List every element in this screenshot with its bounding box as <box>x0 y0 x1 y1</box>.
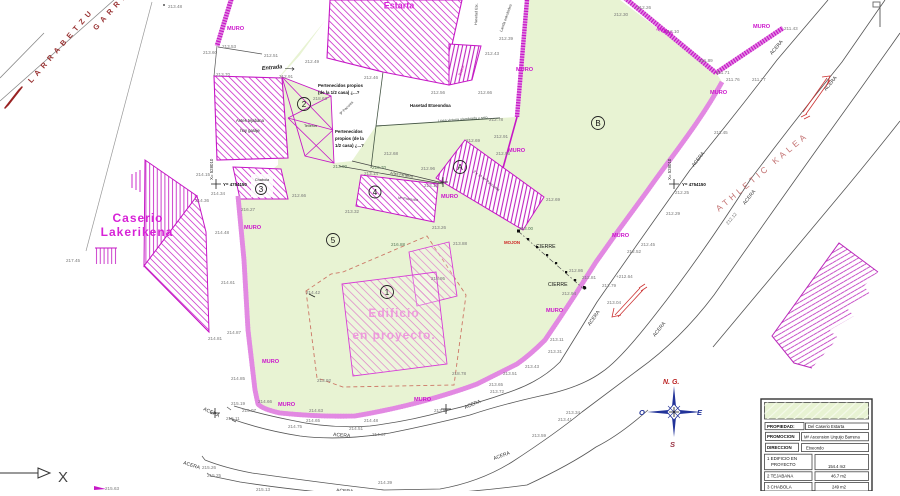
svg-text:213.11: 213.11 <box>550 337 564 342</box>
svg-text:Mª Ascension Urquijo Barrena: Mª Ascension Urquijo Barrena <box>804 435 860 440</box>
svg-text:212.78: 212.78 <box>489 117 503 122</box>
svg-text:212.30: 212.30 <box>614 12 628 17</box>
svg-text:1: 1 <box>385 288 390 297</box>
svg-text:154.4 m2: 154.4 m2 <box>828 464 846 469</box>
svg-text:213.00: 213.00 <box>519 226 533 231</box>
svg-text:213.60: 213.60 <box>203 50 217 55</box>
svg-text:212.96: 212.96 <box>421 166 435 171</box>
svg-text:Y= 4754150: Y= 4754150 <box>682 182 706 187</box>
svg-text:Hasetad Etx.: Hasetad Etx. <box>474 3 479 25</box>
svg-text:3: 3 <box>259 185 264 194</box>
svg-text:214.51: 214.51 <box>349 426 363 431</box>
svg-text:211.43: 211.43 <box>784 26 798 31</box>
svg-text:MURO: MURO <box>278 402 296 408</box>
svg-text:propios (de la: propios (de la <box>335 136 364 141</box>
svg-text:214.61: 214.61 <box>221 280 235 285</box>
svg-text:Chabola: Chabola <box>255 178 270 182</box>
svg-text:212.68: 212.68 <box>384 151 398 156</box>
svg-text:S: S <box>670 440 675 449</box>
svg-text:215.63: 215.63 <box>105 486 119 491</box>
svg-text:MURO: MURO <box>546 308 564 314</box>
svg-text:en proyecto.: en proyecto. <box>352 328 435 342</box>
svg-text:MURO: MURO <box>516 67 534 73</box>
svg-text:211.71: 211.71 <box>716 70 730 75</box>
svg-text:5: 5 <box>331 236 336 245</box>
svg-text:213.92: 213.92 <box>317 378 331 383</box>
svg-text:213.43: 213.43 <box>525 364 539 369</box>
svg-text:MURO: MURO <box>227 26 245 32</box>
svg-text:212.43: 212.43 <box>485 51 499 56</box>
svg-text:213.88: 213.88 <box>453 241 467 246</box>
svg-text:N. G.: N. G. <box>663 379 679 386</box>
svg-text:215.25: 215.25 <box>207 473 221 478</box>
svg-text:212.45: 212.45 <box>641 242 655 247</box>
svg-text:214.65: 214.65 <box>306 418 320 423</box>
svg-text:213.48: 213.48 <box>168 4 182 9</box>
svg-text:Lakerikena: Lakerikena <box>101 225 174 239</box>
svg-text:218.63: 218.63 <box>313 96 327 101</box>
svg-text:Telleros: Telleros <box>304 124 317 128</box>
svg-text:213.70: 213.70 <box>216 72 230 77</box>
svg-text:MURO: MURO <box>244 225 262 231</box>
svg-text:214.63: 214.63 <box>309 408 323 413</box>
svg-text:Y= 4754150: Y= 4754150 <box>223 182 247 187</box>
svg-text:MURO: MURO <box>612 233 630 239</box>
svg-text:212.39: 212.39 <box>499 36 513 41</box>
svg-text:218.95: 218.95 <box>431 276 445 281</box>
svg-text:A: A <box>457 163 463 172</box>
svg-text:214.81: 214.81 <box>208 336 222 341</box>
svg-text:212.51: 212.51 <box>264 53 278 58</box>
svg-text:(de la 1/2 casa) ¿...?: (de la 1/2 casa) ¿...? <box>318 90 360 95</box>
svg-text:212.66: 212.66 <box>292 193 306 198</box>
svg-text:1 EDIFICIO EN: 1 EDIFICIO EN <box>767 456 797 461</box>
svg-text:212.86: 212.86 <box>569 268 583 273</box>
svg-text:211.45: 211.45 <box>714 130 728 135</box>
svg-text:213.32: 213.32 <box>345 209 359 214</box>
svg-text:213.53: 213.53 <box>222 44 236 49</box>
svg-text:212.94: 212.94 <box>562 291 576 296</box>
svg-text:ACERA: ACERA <box>333 432 351 439</box>
svg-text:213.41: 213.41 <box>558 417 572 422</box>
svg-text:216.27: 216.27 <box>241 207 255 212</box>
svg-text:215.19: 215.19 <box>231 401 245 406</box>
svg-text:212.52: 212.52 <box>627 249 641 254</box>
svg-text:216.70: 216.70 <box>372 165 386 170</box>
svg-text:DIRECCION: DIRECCION <box>767 445 792 450</box>
svg-text:214.39: 214.39 <box>378 480 392 485</box>
svg-text:MURO: MURO <box>262 359 280 365</box>
svg-text:218.78: 218.78 <box>452 371 466 376</box>
svg-text:Estarta: Estarta <box>384 1 416 11</box>
svg-text:CIERRE: CIERRE <box>536 244 556 250</box>
svg-text:Etxeondo: Etxeondo <box>806 445 824 450</box>
svg-text:PROPIEDAD:: PROPIEDAD: <box>767 424 795 429</box>
svg-text:214.75: 214.75 <box>288 424 302 429</box>
svg-text:3 CHABOLA: 3 CHABOLA <box>767 484 792 489</box>
svg-text:214.85: 214.85 <box>231 376 245 381</box>
svg-text:212.26: 212.26 <box>637 5 651 10</box>
svg-text:211.89: 211.89 <box>699 58 713 63</box>
svg-text:212.66: 212.66 <box>478 90 492 95</box>
svg-text:X: X <box>58 469 68 486</box>
svg-text:X= 528010: X= 528010 <box>209 158 214 180</box>
svg-text:214.42: 214.42 <box>306 290 320 295</box>
svg-text:212.29: 212.29 <box>666 211 680 216</box>
svg-text:B: B <box>595 119 600 128</box>
svg-text:213.14: 213.14 <box>364 171 378 176</box>
svg-text:MOJON: MOJON <box>504 240 520 245</box>
svg-text:214.34: 214.34 <box>211 191 225 196</box>
svg-text:213.72: 213.72 <box>490 389 504 394</box>
svg-text:MURO: MURO <box>508 148 526 154</box>
svg-text:MURO: MURO <box>710 90 728 96</box>
svg-text:213.51: 213.51 <box>503 371 517 376</box>
svg-text:214.66: 214.66 <box>258 399 272 404</box>
svg-text:213.34: 213.34 <box>566 410 580 415</box>
svg-text:213.00: 213.00 <box>333 164 347 169</box>
svg-text:Hasetad Etxeondoa: Hasetad Etxeondoa <box>410 103 451 108</box>
svg-text:2 TEJABANA: 2 TEJABANA <box>767 474 793 479</box>
svg-text:Pertenecidos: Pertenecidos <box>335 129 363 134</box>
svg-text:212.91: 212.91 <box>279 74 293 79</box>
svg-text:217.45: 217.45 <box>66 258 80 263</box>
svg-text:249 m2: 249 m2 <box>832 484 847 489</box>
svg-text:MURO: MURO <box>441 194 459 200</box>
svg-text:Caserio: Caserio <box>112 211 163 225</box>
svg-text:212.46: 212.46 <box>364 75 378 80</box>
svg-text:PROYECTO: PROYECTO <box>771 462 796 467</box>
svg-text:+212.64: +212.64 <box>616 274 633 279</box>
svg-text:4: 4 <box>373 188 378 197</box>
svg-text:PROMOCION: PROMOCION <box>767 434 795 439</box>
svg-text:211.76: 211.76 <box>726 77 740 82</box>
svg-text:216.88: 216.88 <box>391 242 405 247</box>
svg-text:2: 2 <box>302 100 307 109</box>
svg-text:Del Caserio Estarta: Del Caserio Estarta <box>808 424 845 429</box>
svg-text:Edificio: Edificio <box>368 306 419 320</box>
svg-text:MURO: MURO <box>753 24 771 30</box>
svg-text:Pertenecidos propios: Pertenecidos propios <box>318 83 363 88</box>
svg-text:212.25: 212.25 <box>675 190 689 195</box>
svg-text:214.87: 214.87 <box>227 330 241 335</box>
svg-text:215.11: 215.11 <box>226 416 240 421</box>
svg-text:212.56: 212.56 <box>431 90 445 95</box>
svg-text:MURO: MURO <box>414 397 432 403</box>
svg-text:212.69: 212.69 <box>466 138 480 143</box>
svg-text:212.79: 212.79 <box>602 283 616 288</box>
svg-text:215.13: 215.13 <box>256 487 270 491</box>
svg-text:1/2 casa) ¿...?: 1/2 casa) ¿...? <box>335 143 364 148</box>
svg-text:Antes tejabana: Antes tejabana <box>236 118 265 123</box>
svg-text:46.7 m2: 46.7 m2 <box>831 474 847 479</box>
svg-text:215.07: 215.07 <box>242 408 256 413</box>
svg-text:O: O <box>639 408 645 417</box>
svg-text:X= 528010: X= 528010 <box>667 158 672 180</box>
svg-text:211.77: 211.77 <box>752 77 766 82</box>
svg-text:214.48: 214.48 <box>364 418 378 423</box>
svg-text:212.69: 212.69 <box>546 197 560 202</box>
svg-text:212.81: 212.81 <box>582 275 596 280</box>
svg-text:214.48: 214.48 <box>215 230 229 235</box>
svg-text:212.91: 212.91 <box>494 134 508 139</box>
svg-text:213.04: 213.04 <box>607 300 621 305</box>
svg-text:214.37: 214.37 <box>372 432 386 437</box>
svg-text:215.26: 215.26 <box>202 465 216 470</box>
svg-text:213.65: 213.65 <box>489 382 503 387</box>
svg-text:213.31: 213.31 <box>548 349 562 354</box>
svg-text:CIERRE: CIERRE <box>548 282 568 288</box>
svg-text:212.49: 212.49 <box>305 59 319 64</box>
svg-text:214.36: 214.36 <box>195 198 209 203</box>
svg-text:213.26: 213.26 <box>432 225 446 230</box>
svg-text:213.19: 213.19 <box>424 183 438 188</box>
svg-text:hoy garaje: hoy garaje <box>240 128 260 133</box>
svg-text:213.59: 213.59 <box>532 433 546 438</box>
